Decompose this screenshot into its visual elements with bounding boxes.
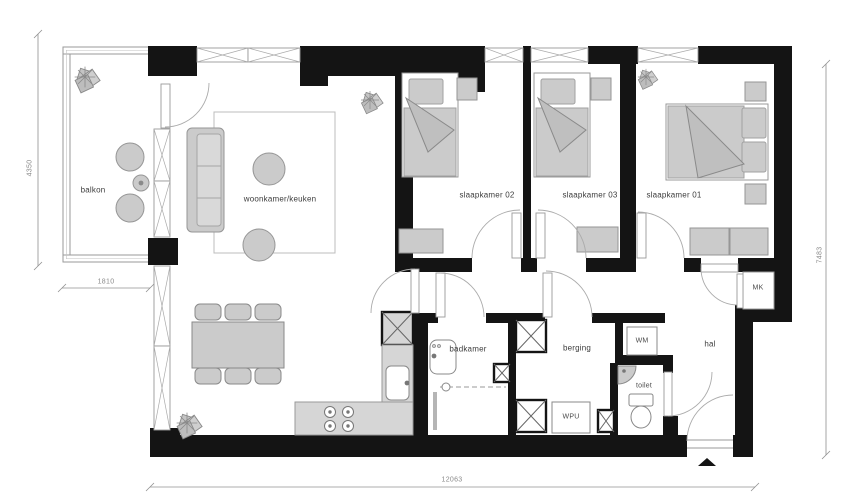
entrance-door [687, 395, 733, 451]
room-label-slaapkamer02: slaapkamer 02 [459, 191, 514, 200]
corner-sink [618, 366, 636, 384]
dining-set [192, 304, 284, 384]
unit-label-wm: WM [636, 338, 649, 345]
floor-plan: balkon woonkamer/keuken slaapkamer 02 sl… [0, 0, 850, 500]
window-woonkamer [197, 48, 300, 62]
door-hal [701, 264, 738, 305]
entrance-arrow-icon [698, 458, 716, 466]
room-label-toilet: toilet [636, 383, 652, 390]
shower-screen [433, 392, 437, 430]
kitchen-counter [295, 345, 413, 435]
door-toilet [664, 372, 712, 416]
toilet-fixtures [618, 366, 653, 428]
nightstand [591, 78, 611, 100]
door-berging [543, 271, 592, 317]
cabinet [577, 227, 618, 252]
door-woonkamer-corridor [371, 269, 419, 313]
room-label-woonkamer: woonkamer/keuken [244, 195, 317, 204]
shower-drain [442, 383, 450, 391]
room-label-balkon: balkon [81, 186, 106, 195]
nightstand [745, 184, 766, 204]
unit-label-wpu: WPU [563, 414, 580, 421]
cabinet [690, 228, 729, 255]
toilet-bowl [631, 406, 651, 428]
bed-slaapkamer02 [402, 73, 458, 177]
bed-slaapkamer01 [666, 104, 768, 180]
unit-label-mk: MK [753, 285, 764, 292]
dimension-balcony-width: 1810 [98, 279, 115, 286]
door-balkon [161, 83, 209, 128]
balcony-chair [116, 143, 144, 171]
side-table [253, 153, 285, 185]
window-facade-woonkamer [154, 266, 170, 430]
shaft-box-kitchen [382, 312, 413, 345]
room-label-badkamer: badkamer [449, 345, 486, 354]
door-badkamer [436, 273, 484, 317]
window-slaapkamer03 [531, 48, 588, 62]
window-slaapkamer01 [638, 48, 698, 62]
bed-slaapkamer03 [534, 73, 590, 177]
room-label-berging: berging [563, 344, 591, 353]
balcony-chair [116, 194, 144, 222]
window-facade-balkon [154, 129, 170, 237]
dimension-total-height: 7483 [817, 247, 824, 264]
room-label-slaapkamer03: slaapkamer 03 [562, 191, 617, 200]
door-mk [737, 274, 743, 308]
dimension-balcony-height: 4350 [27, 160, 34, 177]
nightstand [457, 78, 477, 100]
cabinet [399, 229, 443, 253]
room-label-hal: hal [704, 340, 715, 349]
shaft-box [598, 410, 614, 432]
shaft-box [516, 400, 546, 432]
dimension-total-width: 12063 [442, 477, 463, 484]
door-slaapkamer02 [472, 210, 521, 258]
floor-plan-drawing [0, 0, 850, 500]
furniture [116, 73, 774, 435]
door-slaapkamer01 [637, 212, 684, 258]
bathroom-fixtures [430, 340, 506, 430]
shaft-box [516, 320, 546, 352]
cabinet [730, 228, 768, 255]
shaft-box [494, 364, 510, 382]
nightstand [745, 82, 766, 101]
room-label-slaapkamer01: slaapkamer 01 [646, 191, 701, 200]
dining-table [192, 322, 284, 368]
sofa [187, 128, 224, 232]
window-slaapkamer02 [485, 48, 523, 62]
lounge-chair [243, 229, 275, 261]
